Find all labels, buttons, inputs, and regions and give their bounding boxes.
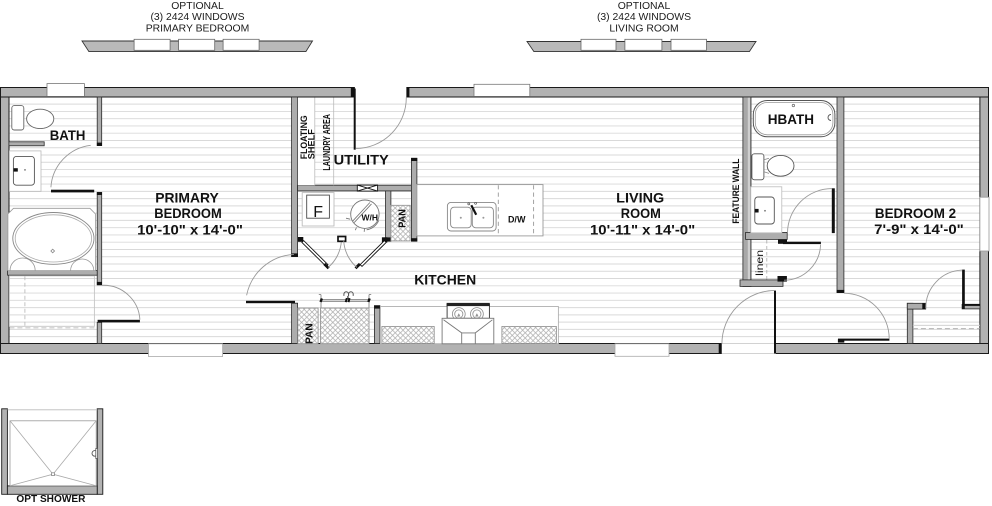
svg-text:PAN: PAN <box>398 209 409 228</box>
svg-text:ROOM: ROOM <box>621 205 661 221</box>
svg-text:BEDROOM 2: BEDROOM 2 <box>875 205 956 221</box>
svg-text:BEDROOM: BEDROOM <box>154 205 222 221</box>
svg-text:PRIMARY BEDROOM: PRIMARY BEDROOM <box>146 23 250 34</box>
svg-text:linen: linen <box>754 250 766 276</box>
svg-text:LAUNDRY AREA: LAUNDRY AREA <box>322 114 333 171</box>
svg-text:LIVING ROOM: LIVING ROOM <box>609 23 678 34</box>
svg-text:D/W: D/W <box>508 214 526 224</box>
svg-text:7'-9" x 14'-0": 7'-9" x 14'-0" <box>874 221 964 237</box>
svg-text:PRIMARY: PRIMARY <box>155 189 219 205</box>
svg-text:OPTIONAL: OPTIONAL <box>171 1 224 12</box>
svg-text:HBATH: HBATH <box>768 111 814 127</box>
svg-text:W/H: W/H <box>362 212 379 222</box>
svg-text:F: F <box>313 204 323 221</box>
svg-text:BATH: BATH <box>50 127 86 143</box>
svg-text:(3) 2424 WINDOWS: (3) 2424 WINDOWS <box>597 12 691 23</box>
svg-text:OPT SHOWER: OPT SHOWER <box>16 493 85 505</box>
svg-text:UTILITY: UTILITY <box>334 151 390 167</box>
svg-text:PAN: PAN <box>304 323 315 344</box>
svg-text:KITCHEN: KITCHEN <box>414 271 476 287</box>
svg-text:10'-11" x 14'-0": 10'-11" x 14'-0" <box>590 221 695 237</box>
svg-text:SHELF: SHELF <box>307 129 318 159</box>
svg-text:10'-10" x 14'-0": 10'-10" x 14'-0" <box>137 221 243 237</box>
svg-text:OPTIONAL: OPTIONAL <box>618 1 671 12</box>
svg-text:LIVING: LIVING <box>616 189 664 205</box>
svg-text:FEATURE WALL: FEATURE WALL <box>730 158 741 223</box>
svg-text:(3) 2424 WINDOWS: (3) 2424 WINDOWS <box>150 12 244 23</box>
